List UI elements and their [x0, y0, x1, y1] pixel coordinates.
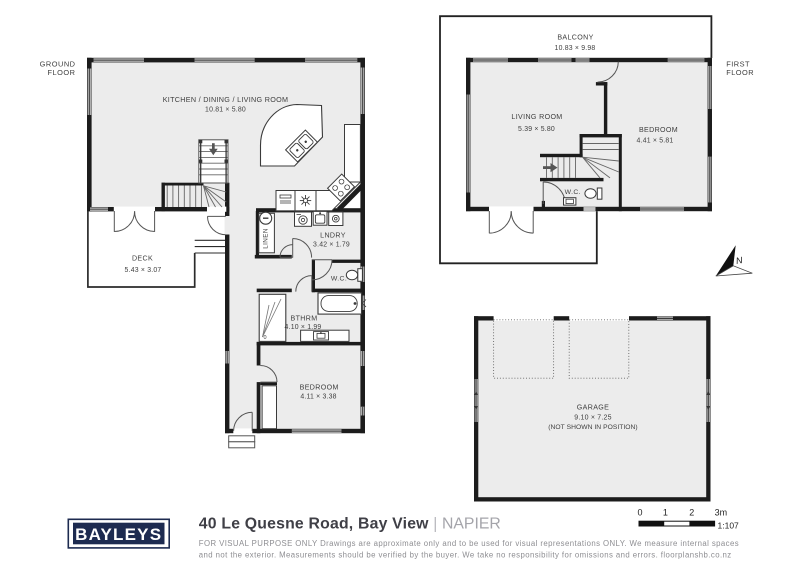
svg-text:GROUND: GROUND: [40, 60, 76, 69]
svg-text:LINEN: LINEN: [262, 228, 269, 249]
svg-text:4.41 × 5.81: 4.41 × 5.81: [637, 138, 674, 145]
svg-text:DECK: DECK: [132, 255, 153, 263]
svg-text:10.83 × 9.98: 10.83 × 9.98: [555, 45, 596, 52]
svg-text:40 Le Quesne Road, Bay View |: 40 Le Quesne Road, Bay View | NAPIER: [199, 516, 501, 533]
svg-text:FOR VISUAL PURPOSE ONLY Drawin: FOR VISUAL PURPOSE ONLY Drawings are app…: [199, 539, 739, 548]
svg-text:1:107: 1:107: [718, 521, 740, 531]
svg-text:BAYLEYS: BAYLEYS: [75, 525, 162, 544]
svg-text:3m: 3m: [715, 508, 728, 518]
svg-text:10.81 × 5.80: 10.81 × 5.80: [205, 107, 246, 114]
svg-text:5.43 × 3.07: 5.43 × 3.07: [125, 267, 162, 274]
svg-text:LNDRY: LNDRY: [320, 231, 346, 239]
svg-text:BEDROOM: BEDROOM: [639, 126, 678, 134]
svg-text:GARAGE: GARAGE: [577, 403, 609, 411]
svg-text:LIVING ROOM: LIVING ROOM: [511, 113, 562, 121]
svg-text:2: 2: [689, 508, 694, 518]
svg-text:0: 0: [264, 335, 267, 341]
svg-text:FIRST: FIRST: [726, 59, 750, 68]
svg-text:(NOT SHOWN IN POSITION): (NOT SHOWN IN POSITION): [548, 424, 637, 431]
svg-text:4.10 × 1.99: 4.10 × 1.99: [285, 324, 322, 331]
svg-text:FLOOR: FLOOR: [726, 68, 754, 77]
svg-text:FLOOR: FLOOR: [48, 68, 76, 77]
svg-text:W.C.: W.C.: [331, 276, 347, 283]
svg-text:BEDROOM: BEDROOM: [300, 384, 339, 392]
svg-text:BTHRM: BTHRM: [291, 314, 318, 322]
svg-text:1: 1: [663, 508, 668, 518]
svg-text:4.11 × 3.38: 4.11 × 3.38: [300, 394, 336, 401]
svg-text:and not the exterior. Measurem: and not the exterior. Measurements shoul…: [199, 550, 732, 559]
svg-text:BALCONY: BALCONY: [557, 33, 593, 41]
svg-text:5.39 × 5.80: 5.39 × 5.80: [518, 126, 555, 133]
svg-text:0: 0: [637, 508, 642, 518]
svg-text:W.C.: W.C.: [565, 189, 581, 196]
svg-text:3.42 × 1.79: 3.42 × 1.79: [313, 241, 350, 248]
svg-text:9.10 × 7.25: 9.10 × 7.25: [574, 414, 611, 421]
svg-text:KITCHEN / DINING / LIVING ROOM: KITCHEN / DINING / LIVING ROOM: [163, 95, 289, 104]
